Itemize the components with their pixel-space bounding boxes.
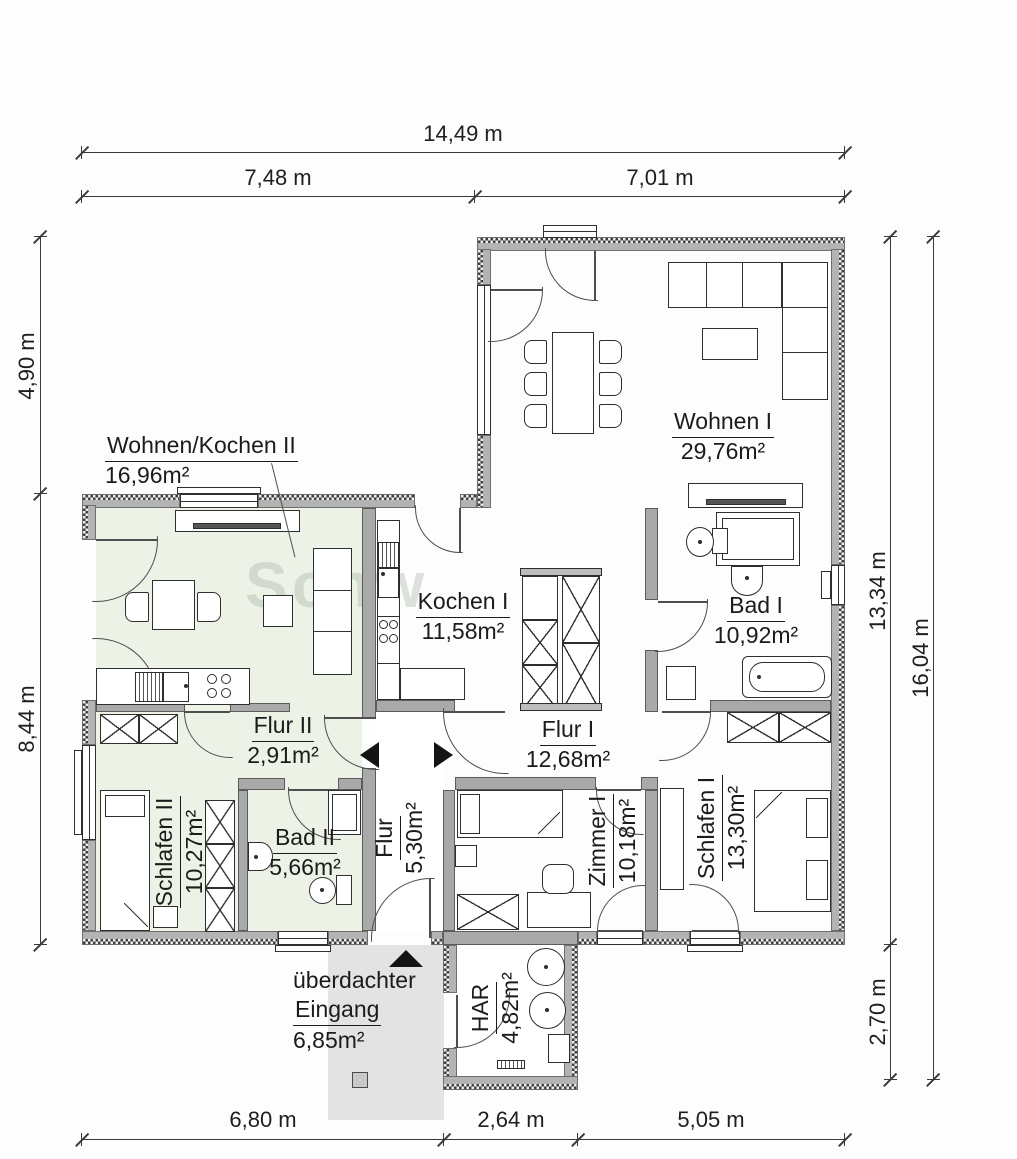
wall-segment xyxy=(82,505,96,540)
room-label-wohnen1: Wohnen I 29,76m² xyxy=(643,408,803,465)
toilet-tank xyxy=(712,528,728,554)
dim-left-lower: 8,44 m xyxy=(14,639,40,799)
room-name: Bad I xyxy=(727,592,785,622)
window-sill xyxy=(74,750,82,835)
room-label-bad2: Bad II 5,66m² xyxy=(225,824,385,881)
window-sill xyxy=(687,945,743,952)
dim-top-total: 14,49 m xyxy=(383,121,543,147)
wardrobe xyxy=(205,888,235,932)
door-leaf xyxy=(662,711,711,713)
wardrobe xyxy=(100,714,139,744)
room-name: Wohnen I xyxy=(672,408,774,438)
tv xyxy=(706,499,786,505)
faucet xyxy=(184,684,188,688)
window xyxy=(543,225,597,238)
wall-segment xyxy=(710,700,831,712)
toilet-dot xyxy=(320,888,324,892)
room-area: 10,18m² xyxy=(614,799,642,883)
wall-segment xyxy=(338,778,362,790)
sofa xyxy=(668,262,782,308)
sofa xyxy=(782,262,828,400)
wall-segment xyxy=(477,237,845,251)
room-area: 16,96m² xyxy=(105,462,189,488)
dim-right-lower: 2,70 m xyxy=(865,932,891,1092)
wall-segment xyxy=(443,790,455,931)
pillow xyxy=(105,795,145,817)
chair xyxy=(524,372,547,396)
burner xyxy=(207,674,217,684)
chair xyxy=(599,340,622,364)
wall-segment xyxy=(831,249,845,565)
blanket-fold xyxy=(756,792,782,818)
room-name: Flur xyxy=(371,816,401,860)
door-leaf xyxy=(594,251,596,301)
chair xyxy=(524,404,547,428)
dim-bottom-right: 5,05 m xyxy=(631,1107,791,1133)
burner xyxy=(207,688,217,698)
washbasin-dot xyxy=(745,576,749,580)
door-leaf xyxy=(429,878,431,938)
utility-box xyxy=(548,1034,570,1063)
bathtub-drain xyxy=(757,675,761,679)
desk-chair xyxy=(542,864,574,894)
room-area: 10,92m² xyxy=(714,622,798,648)
dim-top-right: 7,01 m xyxy=(580,165,740,191)
door-leaf xyxy=(443,711,505,713)
room-label-har: HAR 4,82m² xyxy=(470,943,522,1073)
wall-segment xyxy=(443,1076,578,1090)
nightstand xyxy=(455,845,477,867)
room-area: 6,85m² xyxy=(293,1027,365,1053)
chair xyxy=(125,592,149,622)
room-name: HAR xyxy=(467,982,497,1035)
door-leaf xyxy=(459,508,461,553)
room-label-schlafen1: Schlafen I 13,30m² xyxy=(693,718,751,938)
window-sill xyxy=(275,945,331,952)
wall-segment xyxy=(443,945,457,993)
chair xyxy=(599,372,622,396)
washing-machine-dot xyxy=(544,965,548,969)
coffee-table xyxy=(702,328,758,360)
floor-plan: Schw xyxy=(0,0,1017,1159)
dim-bottom-center: 2,64 m xyxy=(431,1107,591,1133)
dimension-line xyxy=(82,196,845,197)
dryer-dot xyxy=(545,1008,549,1012)
chair xyxy=(599,404,622,428)
entrance-pillar xyxy=(352,1072,368,1088)
room-area: 13,30m² xyxy=(723,786,751,870)
room-label-bad1: Bad I 10,92m² xyxy=(676,592,836,649)
sink-drainer xyxy=(378,542,399,568)
faucet xyxy=(381,572,385,576)
chair xyxy=(524,340,547,364)
wall-segment xyxy=(645,508,658,600)
dining-table xyxy=(152,580,195,630)
room-name: Schlafen I xyxy=(693,775,723,881)
room-name: Kochen I xyxy=(416,588,511,618)
wall-segment xyxy=(564,945,578,1090)
burner xyxy=(221,688,231,698)
wall-segment xyxy=(477,435,491,508)
wall-segment xyxy=(362,508,376,718)
cabinet-top xyxy=(520,568,602,576)
dim-bottom-left: 6,80 m xyxy=(183,1107,343,1133)
pillow xyxy=(806,860,828,900)
room-name: Bad II xyxy=(273,824,337,854)
room-area: 2,91m² xyxy=(247,742,319,768)
burner xyxy=(221,674,231,684)
shower-tray xyxy=(722,518,794,560)
room-name: Wohnen/Kochen II xyxy=(105,432,298,462)
wall-segment xyxy=(831,605,845,931)
room-label-zimmer1: Zimmer I 10,18m² xyxy=(584,731,642,951)
bath-cabinet xyxy=(666,666,696,700)
dim-left-upper: 4,90 m xyxy=(14,286,40,446)
window xyxy=(180,494,258,508)
dimension-line xyxy=(82,152,845,153)
wall-segment xyxy=(477,249,491,285)
blanket-fold xyxy=(538,812,560,834)
dresser xyxy=(660,788,684,890)
wall-segment xyxy=(643,931,690,945)
desk xyxy=(527,892,591,928)
room-label-flur2: Flur II 2,91m² xyxy=(203,712,363,769)
wall-segment xyxy=(645,790,658,931)
wall-segment xyxy=(82,494,180,508)
wall-segment xyxy=(82,700,96,745)
room-label-schlafen2: Schlafen II 10,27m² xyxy=(151,742,209,962)
blanket-fold xyxy=(124,903,148,927)
chair xyxy=(197,592,221,622)
room-label-wohnen-kochen2: Wohnen/Kochen II 16,96m² xyxy=(105,432,298,489)
dim-top-left: 7,48 m xyxy=(198,165,358,191)
room-area: 11,58m² xyxy=(422,618,505,644)
pillow xyxy=(806,798,828,838)
entrance-arrow-icon xyxy=(389,950,423,967)
room-name-line1: überdachter xyxy=(293,967,416,993)
wardrobe xyxy=(457,894,519,930)
cabinet-base xyxy=(520,703,602,711)
side-table xyxy=(263,595,293,627)
wardrobe xyxy=(779,712,831,743)
window xyxy=(278,931,328,945)
dining-table xyxy=(552,332,594,434)
arrow-right-icon xyxy=(434,742,453,768)
toilet-dot xyxy=(698,540,702,544)
wardrobe xyxy=(562,576,600,643)
room-name: Schlafen II xyxy=(151,796,181,909)
room-area: 5,66m² xyxy=(269,854,341,880)
sink-drainer xyxy=(135,672,163,702)
room-name: Flur II xyxy=(252,712,315,742)
door-leaf xyxy=(456,995,458,1048)
kitchen-counter xyxy=(400,668,465,700)
room-label-kochen1: Kochen I 11,58m² xyxy=(383,588,543,645)
room-name-line2: Eingang xyxy=(293,995,381,1026)
door-leaf xyxy=(96,539,158,541)
room-area: 29,76m² xyxy=(681,438,765,464)
dimension-line xyxy=(82,1139,845,1140)
wall-segment xyxy=(82,840,96,931)
wall-segment xyxy=(645,650,658,712)
tv xyxy=(193,523,281,529)
dimension-line xyxy=(40,237,41,945)
pillow xyxy=(460,794,480,834)
wardrobe xyxy=(562,643,600,710)
window xyxy=(82,745,96,840)
dim-right-main: 13,34 m xyxy=(865,511,891,671)
sofa xyxy=(313,548,352,675)
room-area: 4,82m² xyxy=(497,972,525,1044)
room-label-flur: Flur 5,30m² xyxy=(371,728,429,948)
room-name: Zimmer I xyxy=(584,794,614,889)
dim-right-total: 16,04 m xyxy=(908,578,934,738)
room-area: 10,27m² xyxy=(181,810,209,894)
wall-segment xyxy=(740,931,845,945)
wall-segment xyxy=(238,778,285,790)
wall-segment xyxy=(455,777,596,790)
wardrobe xyxy=(139,714,178,744)
room-area: 5,30m² xyxy=(401,802,429,874)
wall-segment xyxy=(328,931,368,945)
room-label-eingang: überdachter Eingang 6,85m² xyxy=(293,966,416,1054)
door-leaf xyxy=(491,289,543,291)
